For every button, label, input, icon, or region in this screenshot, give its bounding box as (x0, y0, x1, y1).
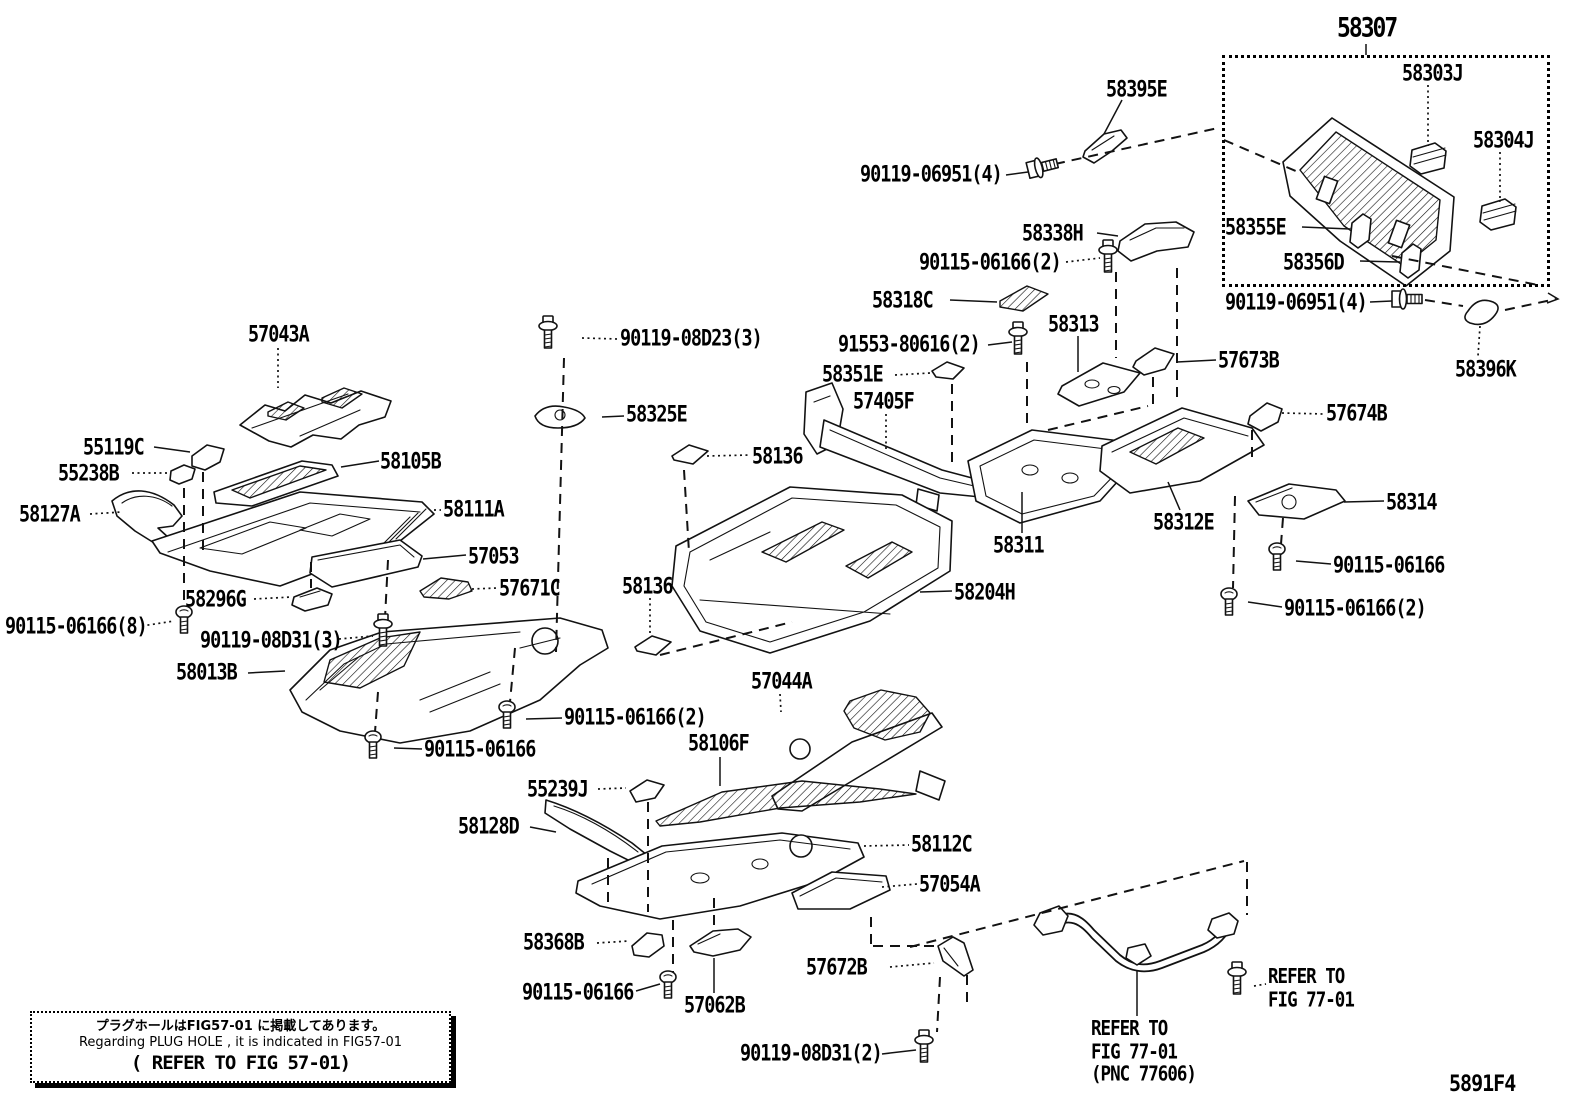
part-label-57674B: 57674B (1326, 403, 1387, 427)
refer-note-right-line1: REFER TO (1268, 966, 1354, 989)
part-55238B-drawing (170, 465, 195, 484)
part-label-57053: 57053 (468, 546, 519, 570)
part-label-58304J: 58304J (1473, 130, 1534, 154)
part-label-58318C: 58318C (872, 290, 933, 314)
part-label-90119-08D31(3): 90119-08D31(3) (200, 630, 342, 654)
part-label-90119-06951(4): 90119-06951(4) (860, 164, 1002, 188)
part-58312E-drawing (1100, 408, 1264, 493)
part-label-58356D: 58356D (1283, 252, 1344, 276)
part-58313-drawing (1058, 363, 1140, 406)
part-label-58127A: 58127A (19, 504, 80, 528)
part-label-58296G: 58296G (185, 589, 246, 613)
part-57672B-bracket (938, 937, 973, 976)
part-58395E-bracket (1083, 130, 1127, 163)
part-label-58313: 58313 (1048, 314, 1099, 338)
part-label-57672B: 57672B (806, 957, 867, 981)
part-label-58128D: 58128D (458, 816, 519, 840)
part-seat-frame (1034, 906, 1238, 971)
part-57043A-drawing (240, 388, 391, 447)
screw-icon (365, 731, 381, 758)
part-label-58355E: 58355E (1225, 217, 1286, 241)
part-label-58338H: 58338H (1022, 223, 1083, 247)
part-58136-clip-bottom (635, 636, 671, 655)
bolt-icon (1099, 240, 1117, 272)
part-label-57671C: 57671C (499, 578, 560, 602)
screw-icon (1269, 543, 1285, 570)
part-label-57054A: 57054A (919, 874, 980, 898)
refer-note-right: REFER TO FIG 77-01 (1268, 966, 1354, 1012)
part-label-90115-06166: 90115-06166 (424, 739, 535, 763)
part-57671C-drawing (420, 578, 472, 599)
part-label-55238B: 55238B (58, 463, 119, 487)
part-label-58112C: 58112C (911, 834, 972, 858)
inset-box-58307 (1222, 55, 1550, 287)
parts-diagram-page: 58307 58303J58304J58355E58356D90119-0695… (0, 0, 1592, 1099)
screw-icon (1221, 588, 1237, 615)
part-55119C-drawing (192, 445, 224, 470)
part-label-58311: 58311 (993, 535, 1044, 559)
part-label-58111A: 58111A (443, 499, 504, 523)
refer-note-right-line2: FIG 77-01 (1268, 989, 1354, 1012)
note-line-en: Regarding PLUG HOLE , it is indicated in… (32, 1035, 449, 1051)
part-58136-clip-top (672, 445, 708, 464)
note-line-refer: ( REFER TO FIG 57-01) (32, 1052, 449, 1075)
screw-icon (660, 971, 676, 998)
part-58396K-hook (1465, 300, 1498, 324)
part-58296G-drawing (292, 588, 332, 611)
part-label-55119C: 55119C (83, 437, 144, 461)
bolt-icon (1009, 322, 1027, 354)
part-58351E-drawing (932, 362, 964, 379)
part-58368B-clip (632, 933, 664, 957)
part-label-58325E: 58325E (626, 404, 687, 428)
refer-note-pnc-line2: FIG 77-01 (1091, 1041, 1196, 1064)
part-label-90115-06166(2): 90115-06166(2) (564, 707, 706, 731)
part-57674B-drawing (1248, 403, 1282, 431)
part-57062B-bracket (690, 929, 751, 956)
bolt-side-icon (1026, 154, 1060, 181)
bolt-icon (1228, 962, 1246, 994)
part-58204H-drawing (672, 487, 952, 653)
refer-note-pnc: REFER TO FIG 77-01 (PNC 77606) (1091, 1018, 1196, 1088)
part-label-57062B: 57062B (684, 995, 745, 1019)
note-line-jp: プラグホールはFIG57-01 に掲載してあります。 (32, 1019, 449, 1035)
part-label-58368B: 58368B (523, 932, 584, 956)
part-label-90115-06166(2): 90115-06166(2) (919, 252, 1061, 276)
part-label-58351E: 58351E (822, 364, 883, 388)
figure-code: 5891F4 (1449, 1072, 1515, 1094)
bolt-icon (915, 1030, 933, 1062)
refer-note-pnc-line3: (PNC 77606) (1091, 1064, 1196, 1087)
part-label-55239J: 55239J (527, 779, 588, 803)
part-label-90119-08D31(2): 90119-08D31(2) (740, 1043, 882, 1067)
part-label-91553-80616(2): 91553-80616(2) (838, 334, 980, 358)
part-58318C-drawing (1000, 286, 1048, 311)
part-label-58013B: 58013B (176, 662, 237, 686)
part-label-58204H: 58204H (954, 582, 1015, 606)
part-label-57043A: 57043A (248, 324, 309, 348)
part-label-58307: 58307 (1337, 16, 1396, 42)
part-label-58105B: 58105B (380, 451, 441, 475)
bolt-icon (539, 316, 557, 348)
part-label-90115-06166: 90115-06166 (522, 982, 633, 1006)
part-label-58312E: 58312E (1153, 512, 1214, 536)
part-label-58136: 58136 (622, 576, 673, 600)
part-label-58395E: 58395E (1106, 79, 1167, 103)
bolt-side-icon (1392, 289, 1422, 309)
plug-hole-note-box: プラグホールはFIG57-01 に掲載してあります。 Regarding PLU… (30, 1011, 451, 1083)
part-label-58106F: 58106F (688, 733, 749, 757)
part-label-90119-08D23(3): 90119-08D23(3) (620, 328, 762, 352)
part-58314-drawing (1248, 484, 1345, 519)
part-label-90115-06166(2): 90115-06166(2) (1284, 598, 1426, 622)
part-label-57044A: 57044A (751, 671, 812, 695)
part-label-58303J: 58303J (1402, 63, 1463, 87)
part-label-57405F: 57405F (853, 391, 914, 415)
part-58106F-strip (656, 781, 916, 826)
part-label-58136: 58136 (752, 446, 803, 470)
part-57673B-drawing (1133, 348, 1174, 375)
refer-note-pnc-line1: REFER TO (1091, 1018, 1196, 1041)
part-58338H-bracket (1118, 222, 1194, 261)
part-55239J-clip (630, 780, 664, 802)
part-label-90115-06166: 90115-06166 (1333, 555, 1444, 579)
part-label-57673B: 57673B (1218, 350, 1279, 374)
part-label-90115-06166(8): 90115-06166(8) (5, 616, 147, 640)
part-58325E-drawing (535, 406, 585, 428)
part-label-90119-06951(4): 90119-06951(4) (1225, 292, 1367, 316)
part-label-58396K: 58396K (1455, 359, 1516, 383)
part-label-58314: 58314 (1386, 492, 1437, 516)
